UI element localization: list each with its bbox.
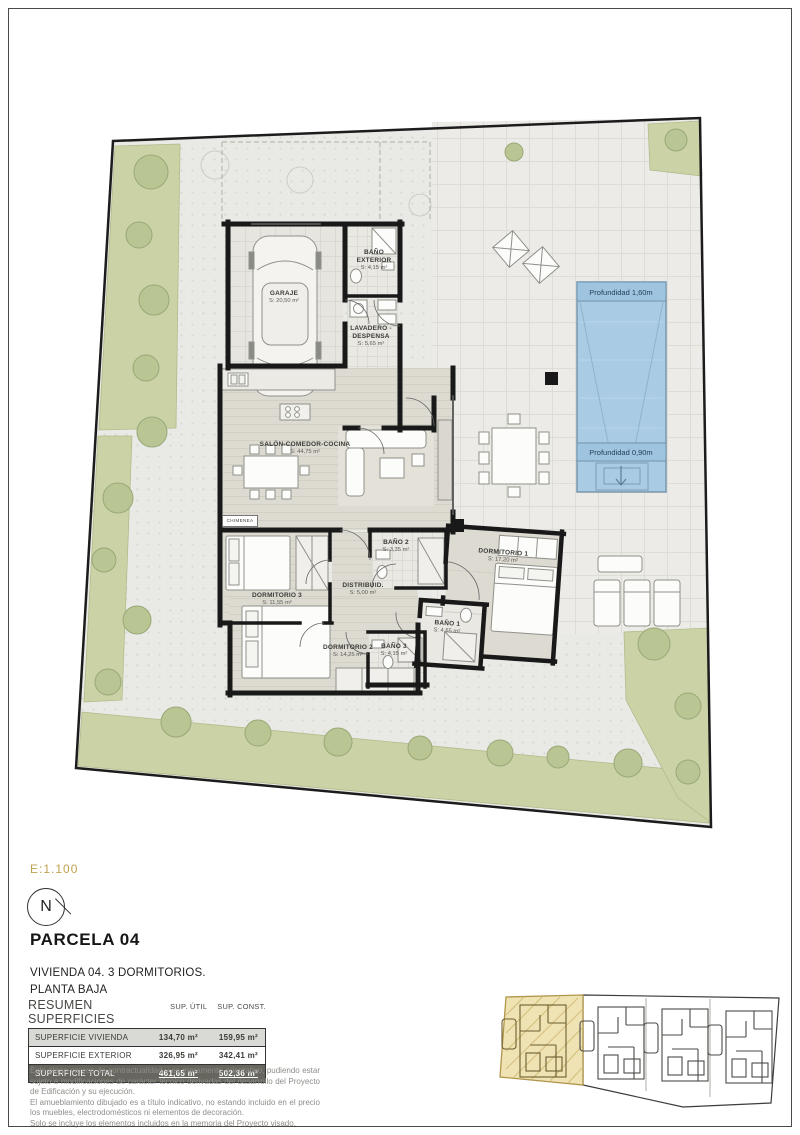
chimenea-label: CHIMENEA	[222, 515, 258, 527]
room-label-dormitorio2: DORMITORIO 2 S: 14,25 m²	[323, 644, 373, 660]
summary-col-util: SUP. ÚTIL	[170, 1002, 207, 1011]
room-label-garaje: GARAJE S: 20,50 m²	[269, 290, 299, 306]
room-label-bano2: BAÑO 2 S: 3,35 m²	[383, 539, 410, 555]
room-label-dormitorio3: DORMITORIO 3 S: 11,55 m²	[252, 592, 302, 608]
outdoor-dining-table	[479, 414, 549, 497]
sun-loungers	[594, 556, 680, 626]
dwelling-subtitle: VIVIENDA 04. 3 DORMITORIOS. PLANTA BAJA	[30, 965, 206, 998]
plan-sheet: Profundidad 1,60m Profundidad 0,90m	[0, 0, 800, 1135]
room-label-bano1: BAÑO 1 S: 4,65 m²	[433, 619, 461, 636]
disclaimer-text: Este plano carece de contractualidad y e…	[30, 1066, 320, 1129]
column	[545, 372, 558, 385]
room-label-bano3: BAÑO 3 S: 4,15 m²	[381, 643, 408, 659]
parcel-title: PARCELA 04	[30, 930, 140, 950]
summary-header: RESUMEN SUPERFICIES SUP. ÚTIL SUP. CONST…	[28, 998, 266, 1029]
tv-bench	[438, 420, 452, 500]
room-label-distribuidor: DISTRIBUID. S: 5,00 m²	[342, 582, 383, 598]
room-label-bano-exterior: BAÑO EXTERIOR S: 4,15 m²	[353, 249, 395, 273]
table-row: SUPERFICIE VIVIENDA 134,70 m² 159,95 m²	[28, 1029, 266, 1047]
summary-col-const: SUP. CONST.	[217, 1002, 266, 1011]
room-label-lavadero: LAVADERO - DESPENSA S: 5,65 m²	[347, 325, 395, 349]
room-label-salon: SALÓN-COMEDOR-COCINA S: 44,75 m²	[260, 441, 351, 457]
dwelling-line2: PLANTA BAJA	[30, 982, 206, 999]
summary-title: RESUMEN SUPERFICIES	[28, 998, 160, 1026]
site-plan: Profundidad 1,60m Profundidad 0,90m	[0, 0, 800, 870]
dwelling-line1: VIVIENDA 04. 3 DORMITORIOS.	[30, 965, 206, 982]
scale-label: E:1.100	[30, 862, 78, 876]
lounge-chair-icon	[493, 231, 560, 284]
walls-layer	[0, 0, 800, 870]
column	[451, 519, 464, 532]
table-row: SUPERFICIE EXTERIOR 326,95 m² 342,41 m²	[28, 1047, 266, 1065]
parcel-locator-map	[478, 985, 798, 1125]
washer-icon	[350, 300, 396, 324]
